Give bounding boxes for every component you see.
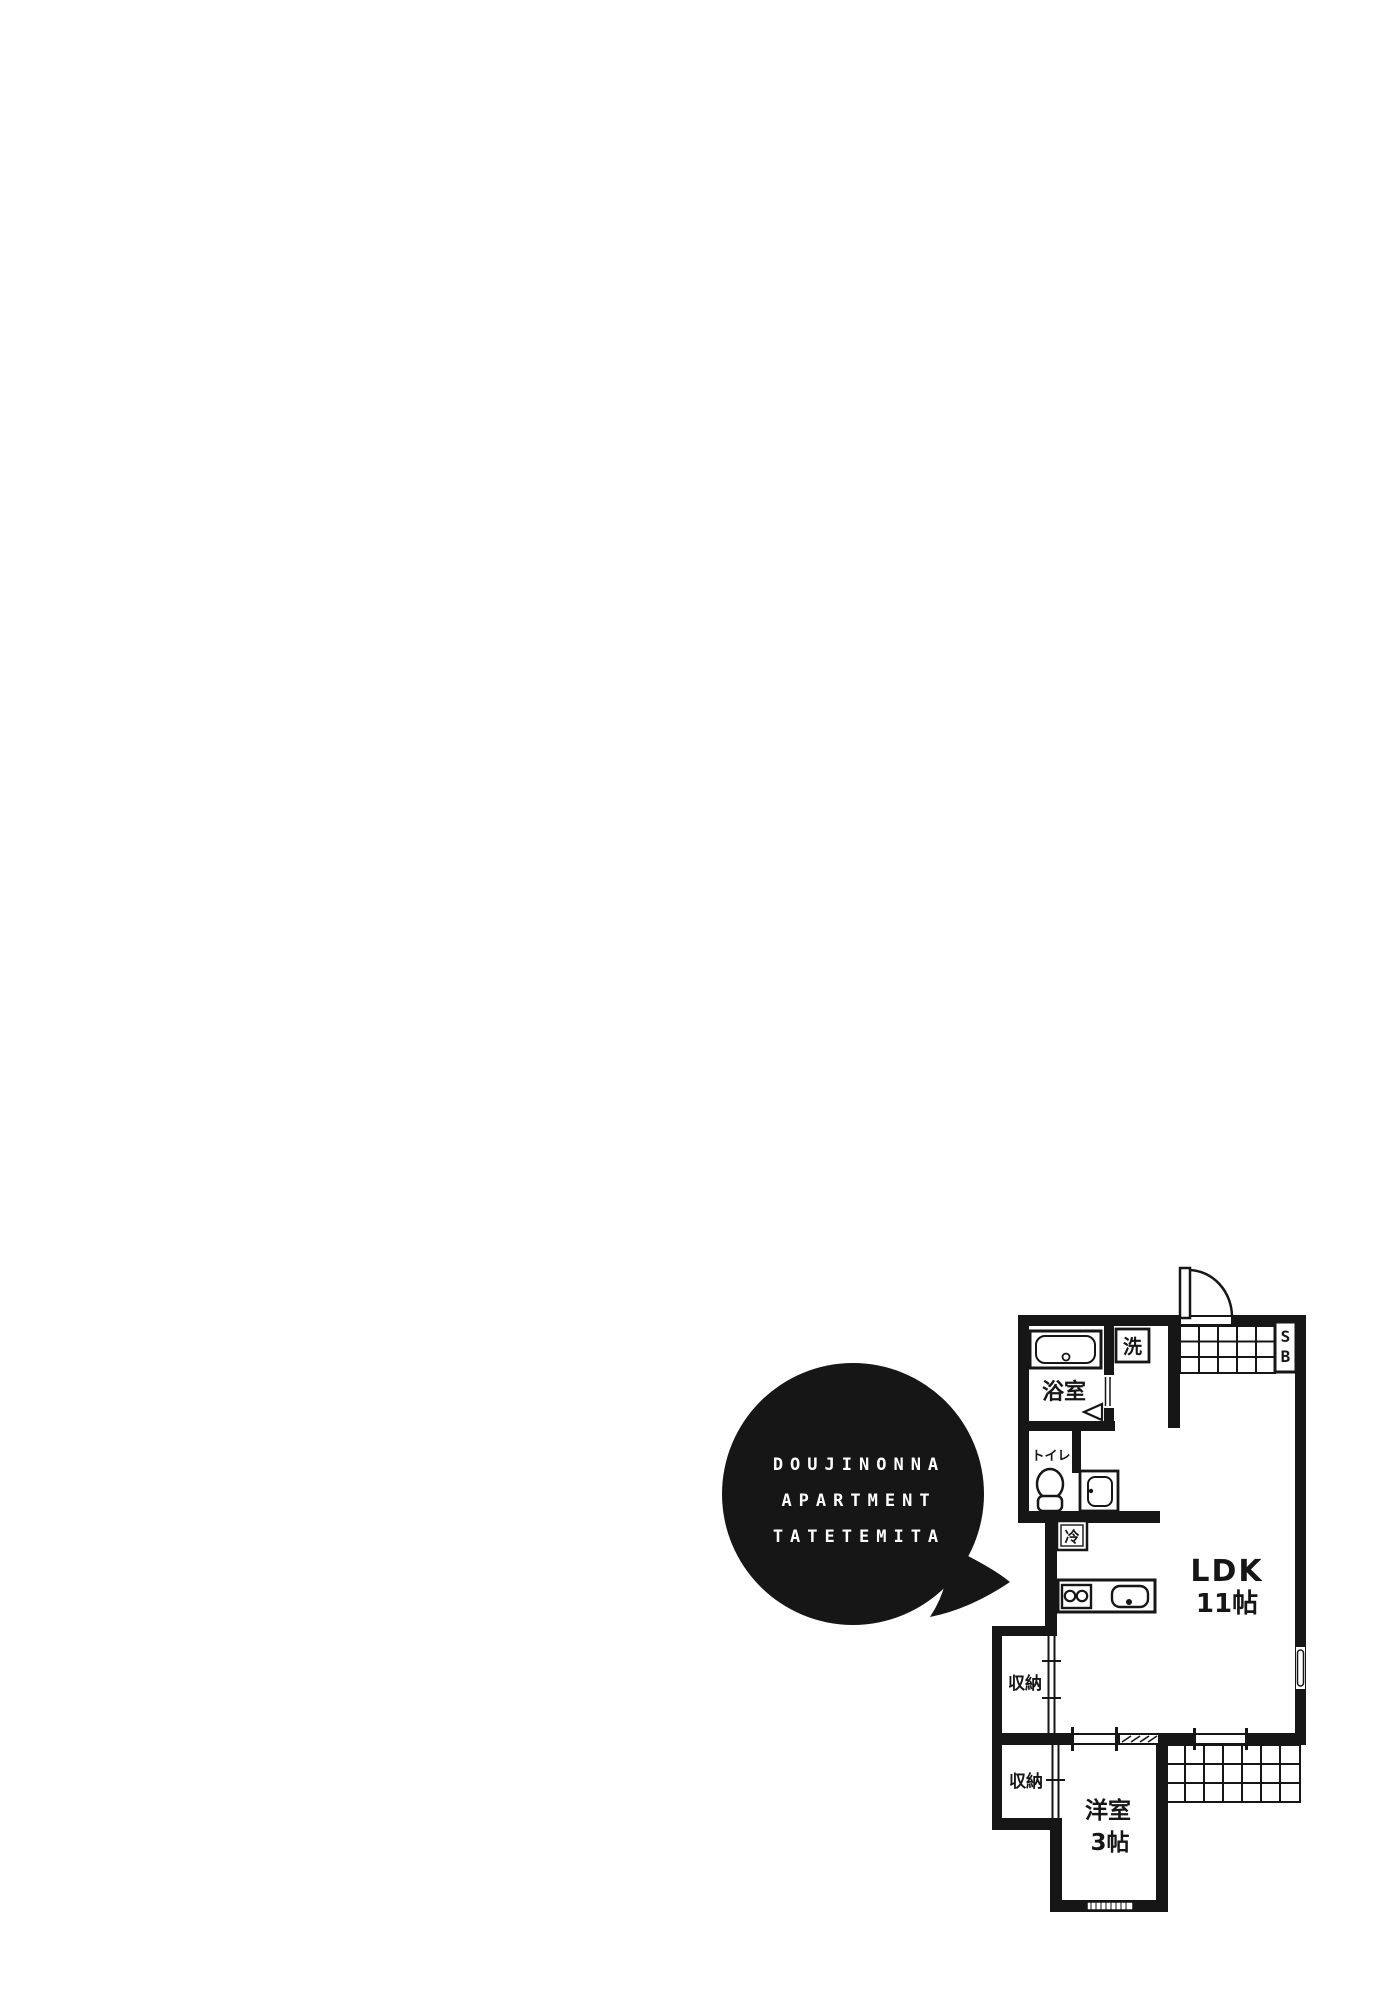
shoe-box-label-bottom: B xyxy=(1281,1347,1291,1366)
veranda-tile-grid xyxy=(1166,1745,1300,1802)
entrance-door-leaf xyxy=(1180,1268,1190,1318)
wall-closet-left xyxy=(992,1626,1002,1830)
washbasin-icon xyxy=(1080,1471,1118,1511)
closet-upper-label: 収納 xyxy=(1008,1673,1042,1694)
closet-lower-label: 収納 xyxy=(1009,1771,1043,1792)
ldk-label: LDK xyxy=(1190,1554,1263,1589)
wall-bath-divider xyxy=(1018,1421,1115,1431)
shoe-box-label-top: S xyxy=(1281,1327,1291,1346)
western-room-size-label: 3帖 xyxy=(1090,1830,1129,1856)
opening-sliding-west-1 xyxy=(1073,1735,1117,1743)
toilet-label: トイレ xyxy=(1031,1449,1070,1464)
wall-kitchen-left xyxy=(1045,1511,1057,1636)
opening-veranda-door xyxy=(1195,1735,1247,1743)
wall-bath-right-upper xyxy=(1104,1326,1114,1375)
entrance-door-arc xyxy=(1190,1270,1232,1317)
washer-label: 洗 xyxy=(1123,1335,1142,1358)
wall-left-upper xyxy=(1018,1315,1029,1523)
window-right xyxy=(1296,1647,1305,1689)
shoe-box: S B xyxy=(1275,1322,1296,1372)
floor-plan-svg: DOUJINONNA APARTMENT TATETEMITA xyxy=(0,0,1400,1991)
bath-label: 浴室 xyxy=(1042,1379,1086,1405)
wall-entrance-inner xyxy=(1168,1326,1180,1428)
kitchen-counter xyxy=(1058,1580,1155,1612)
closet-door-lower xyxy=(1046,1745,1065,1818)
entrance-door xyxy=(1180,1268,1232,1325)
page: DOUJINONNA APARTMENT TATETEMITA xyxy=(0,0,1400,1991)
fridge-box: 冷 xyxy=(1057,1521,1087,1550)
western-room-label: 洋室 xyxy=(1085,1797,1131,1824)
wall-western-left xyxy=(1050,1818,1062,1912)
wall-top-left xyxy=(1018,1315,1180,1326)
kitchen-sink-icon xyxy=(1112,1586,1148,1607)
speech-bubble: DOUJINONNA APARTMENT TATETEMITA xyxy=(722,1363,1010,1625)
stove-icon xyxy=(1062,1585,1091,1608)
fridge-label: 冷 xyxy=(1064,1528,1079,1546)
ldk-size-label: 11帖 xyxy=(1196,1589,1258,1619)
bathtub-icon xyxy=(1030,1331,1101,1368)
bubble-line-3: TATETEMITA xyxy=(773,1527,945,1547)
bubble-line-2: APARTMENT xyxy=(781,1491,936,1511)
closet-door-upper xyxy=(1042,1636,1061,1733)
washer-box: 洗 xyxy=(1116,1329,1149,1362)
wall-bath-right-lower xyxy=(1104,1408,1114,1421)
toilet-icon xyxy=(1037,1469,1063,1511)
window-western-bottom xyxy=(1087,1902,1133,1910)
wall-toilet-right xyxy=(1072,1431,1081,1473)
bubble-line-1: DOUJINONNA xyxy=(773,1455,945,1475)
entrance-tile-grid xyxy=(1180,1326,1275,1373)
